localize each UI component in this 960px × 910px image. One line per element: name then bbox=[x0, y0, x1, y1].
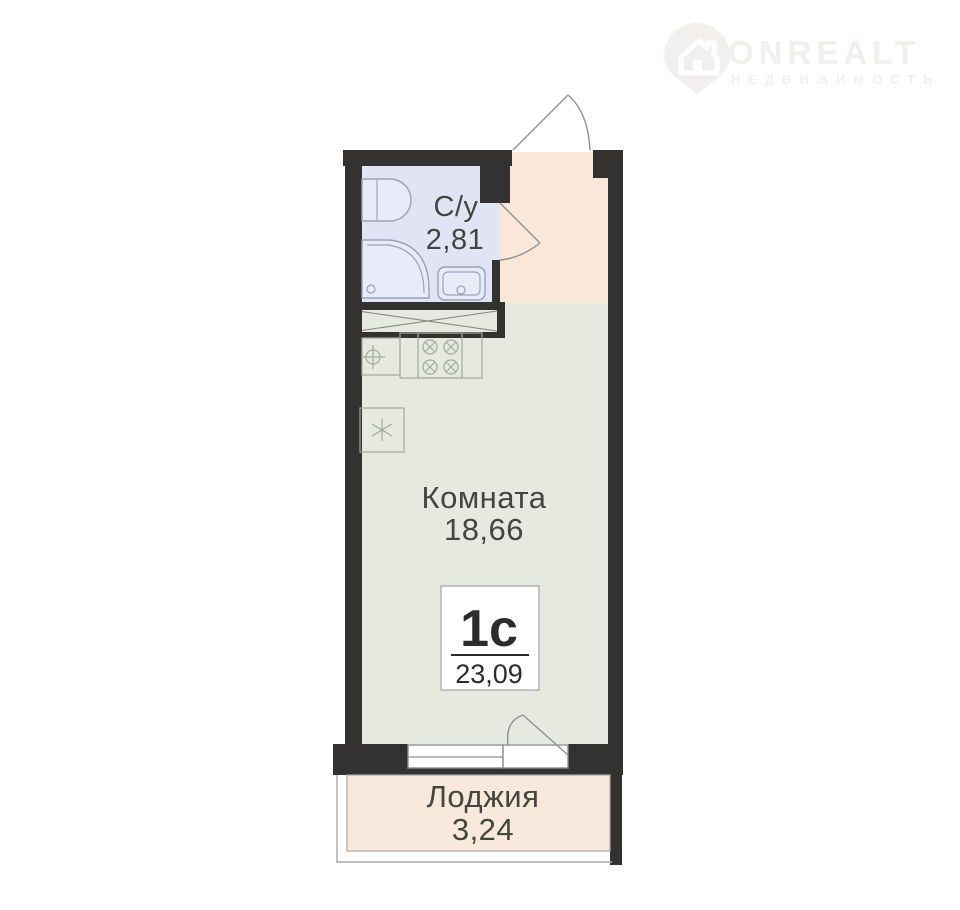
wall-bathroom-right-upper bbox=[492, 166, 500, 203]
house-door-notch bbox=[693, 60, 702, 74]
floor-plan-canvas: ONREALT НЕДВИЖИМОСТЬ bbox=[0, 0, 960, 910]
wall-bottom-right bbox=[568, 744, 623, 775]
apartment-type-badge: 1с 23,09 bbox=[441, 586, 539, 690]
bathroom-label: С/у bbox=[434, 191, 479, 223]
wall-right bbox=[608, 150, 623, 775]
onrealt-logo: ONREALT НЕДВИЖИМОСТЬ bbox=[664, 23, 941, 95]
wall-bathroom-bottom bbox=[345, 302, 502, 310]
wall-bottom-left bbox=[333, 744, 408, 775]
logo-tagline-text: НЕДВИЖИМОСТЬ bbox=[731, 73, 941, 87]
bathroom-area: 2,81 bbox=[426, 224, 484, 256]
loggia-label: Лоджия bbox=[427, 779, 540, 814]
room-label: Комната bbox=[422, 480, 547, 515]
badge-total-area: 23,09 bbox=[455, 659, 523, 689]
badge-type-text: 1с bbox=[460, 600, 518, 658]
toilet-icon bbox=[362, 179, 411, 221]
hallway-floor bbox=[500, 152, 608, 303]
map-pin-icon bbox=[664, 23, 730, 95]
loggia-area: 3,24 bbox=[452, 812, 514, 847]
wall-wardrobe-right bbox=[497, 302, 505, 338]
room-area: 18,66 bbox=[444, 512, 524, 547]
entry-door-swing bbox=[513, 95, 590, 150]
wall-bathroom-right-lower bbox=[492, 260, 500, 303]
logo-brand-text: ONREALT bbox=[728, 34, 920, 71]
floor-plan-page: ONREALT НЕДВИЖИМОСТЬ bbox=[0, 0, 960, 910]
wall-left bbox=[345, 150, 362, 775]
balcony-door bbox=[503, 745, 568, 768]
wall-loggia-right bbox=[610, 775, 622, 865]
